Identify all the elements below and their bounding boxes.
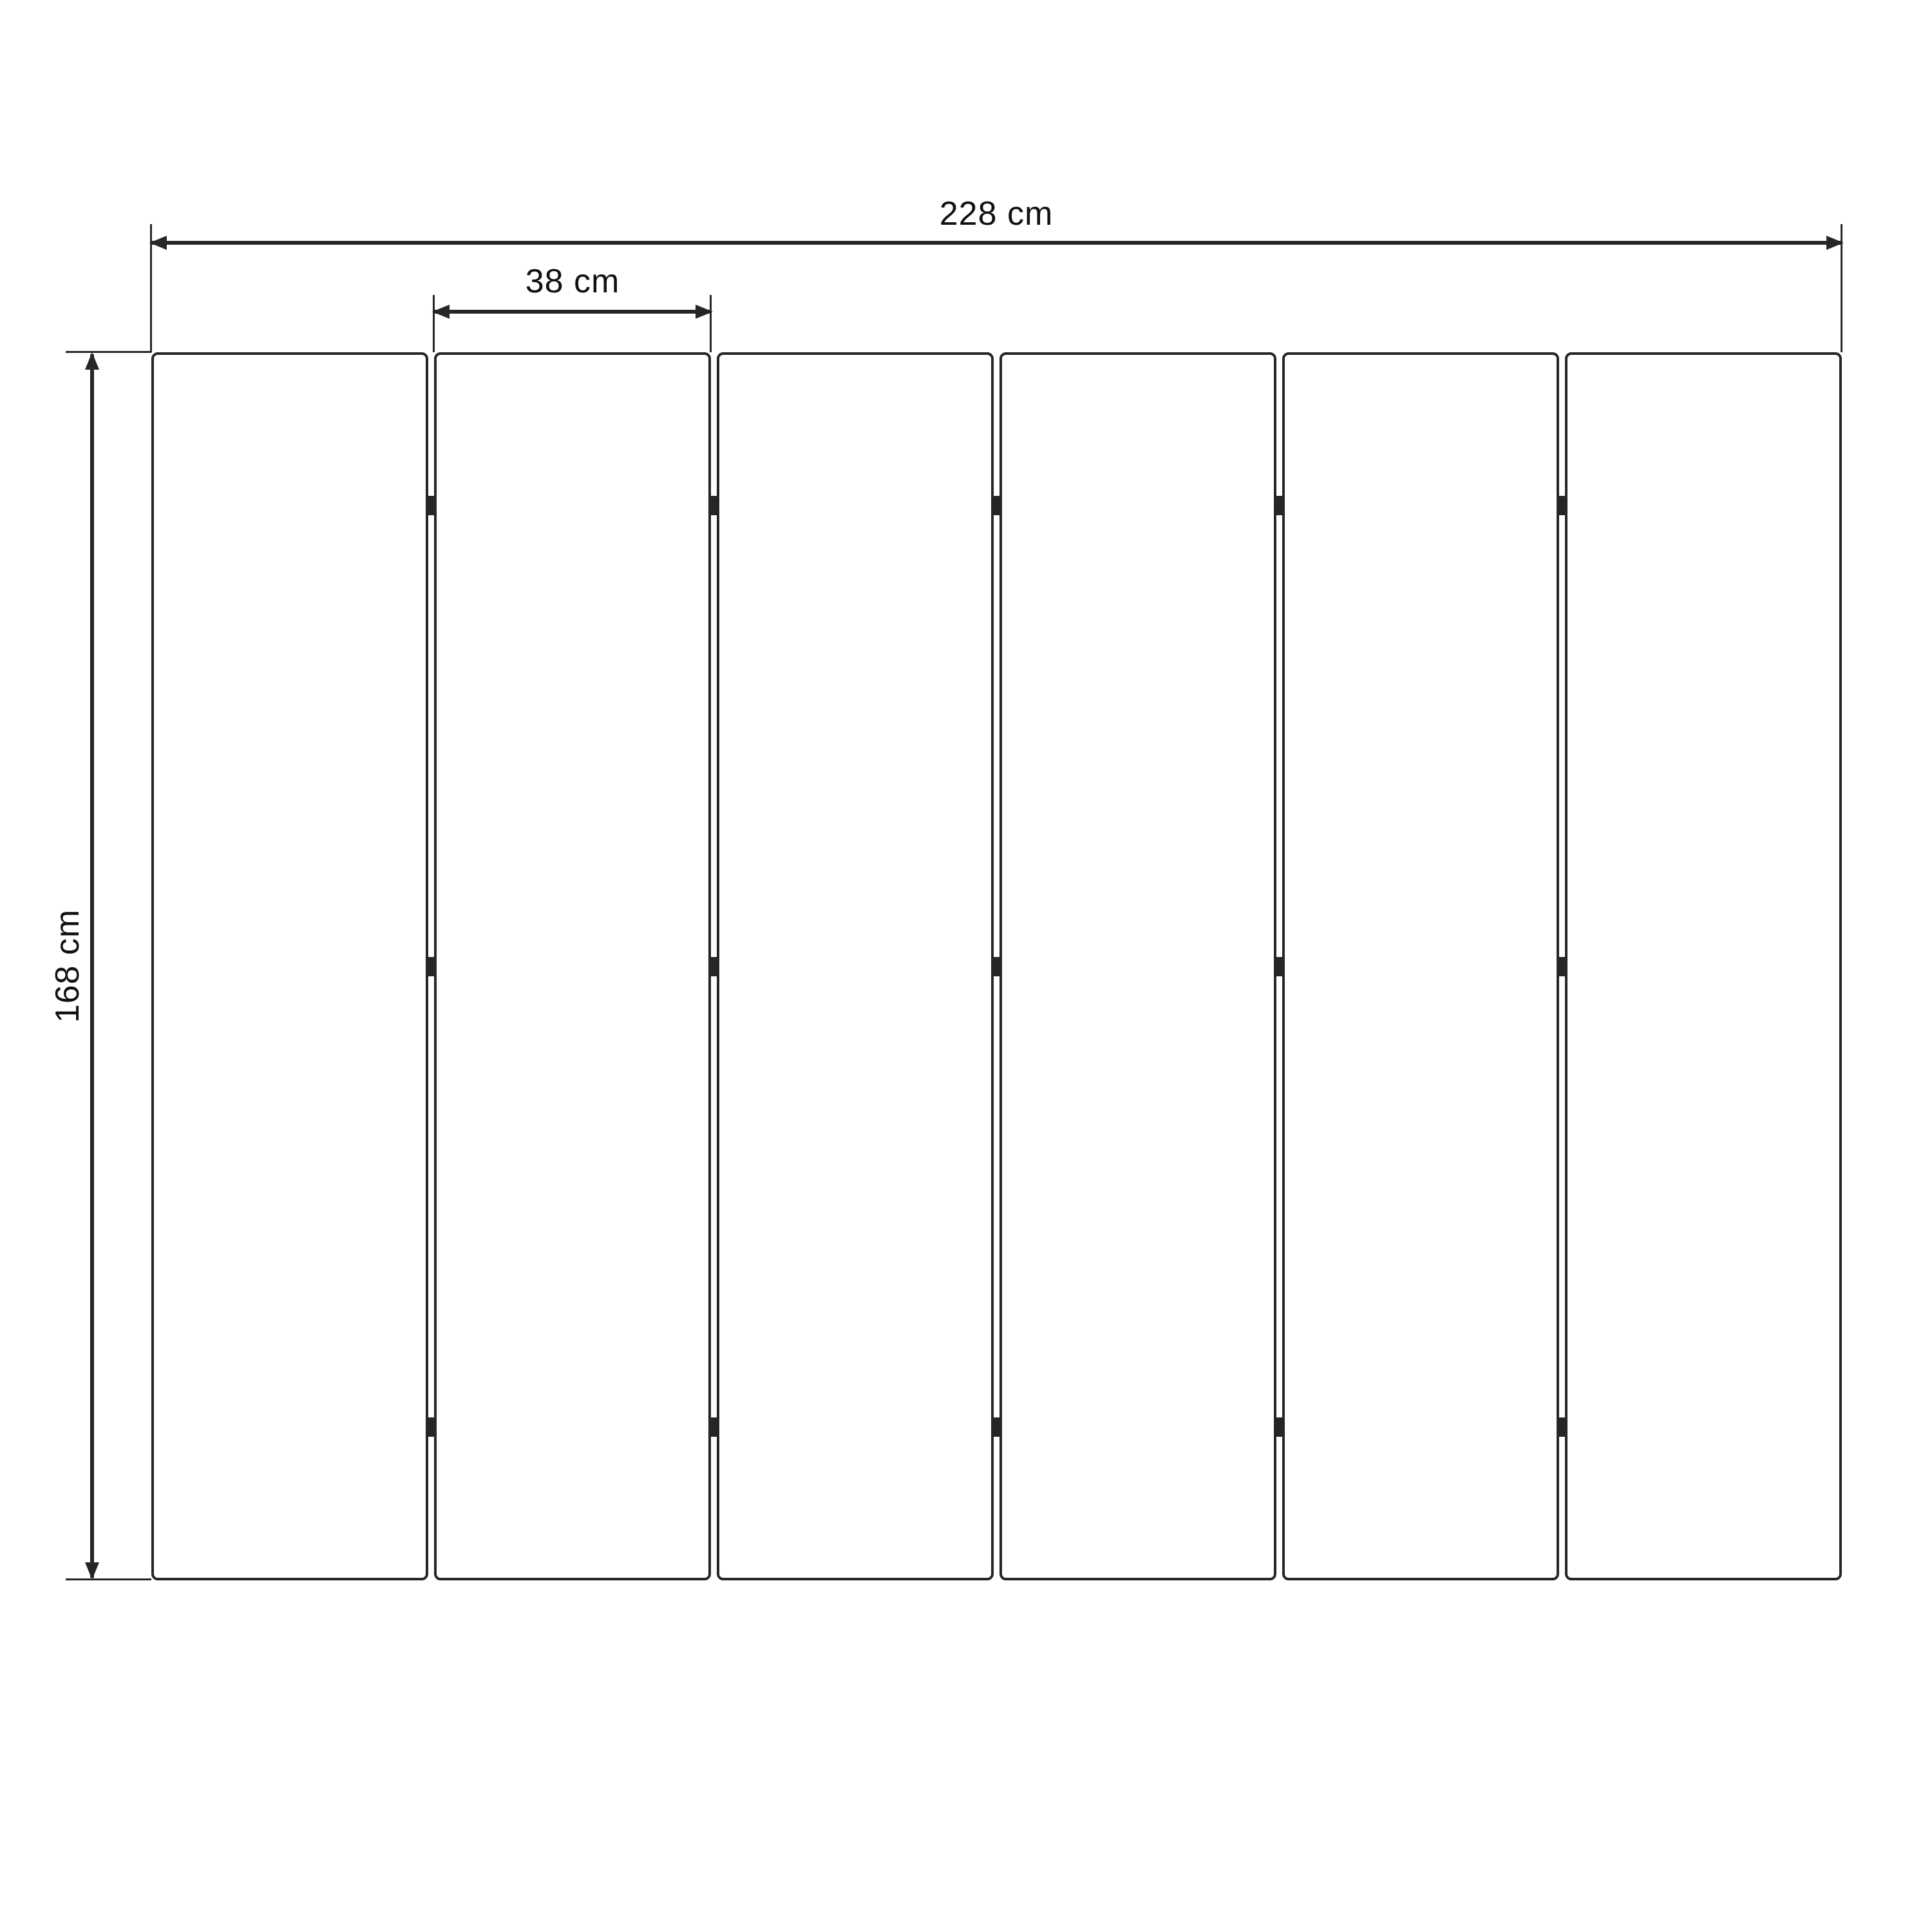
hinge: [1275, 957, 1283, 976]
hinge: [992, 1417, 1001, 1437]
panel-width-extension-line-left: [433, 295, 435, 352]
panel-width-dimension-line: [434, 310, 711, 314]
height-extension-line-bottom: [66, 1578, 151, 1580]
panel: [434, 352, 711, 1580]
arrow-left-icon: [149, 236, 167, 250]
panel-width-label: 38 cm: [526, 265, 620, 298]
panel: [717, 352, 994, 1580]
hinge: [1275, 1417, 1283, 1437]
height-dimension-line: [90, 354, 94, 1578]
total-width-extension-line-right: [1841, 224, 1842, 352]
panel: [151, 352, 428, 1580]
height-extension-line-top: [66, 351, 151, 353]
total-width-label: 228 cm: [940, 197, 1054, 231]
hinge: [427, 1417, 435, 1437]
total-width-extension-line-left: [150, 224, 152, 352]
arrow-down-icon: [85, 1562, 99, 1580]
panel: [1282, 352, 1559, 1580]
height-label: 168 cm: [51, 909, 84, 1023]
hinge: [1275, 496, 1283, 515]
arrow-left-icon: [432, 305, 450, 319]
hinge: [710, 1417, 718, 1437]
panel-width-extension-line-right: [710, 295, 712, 352]
hinge: [427, 496, 435, 515]
hinge: [710, 957, 718, 976]
panel: [1565, 352, 1842, 1580]
hinge: [1558, 496, 1566, 515]
hinge: [427, 957, 435, 976]
panel-layout-diagram: 228 cm 38 cm 168 cm: [0, 0, 1932, 1932]
total-width-dimension-line: [151, 241, 1842, 245]
hinge: [992, 496, 1001, 515]
hinge: [992, 957, 1001, 976]
arrow-up-icon: [85, 352, 99, 370]
hinge: [1558, 1417, 1566, 1437]
hinge: [1558, 957, 1566, 976]
hinge: [710, 496, 718, 515]
panel: [999, 352, 1276, 1580]
